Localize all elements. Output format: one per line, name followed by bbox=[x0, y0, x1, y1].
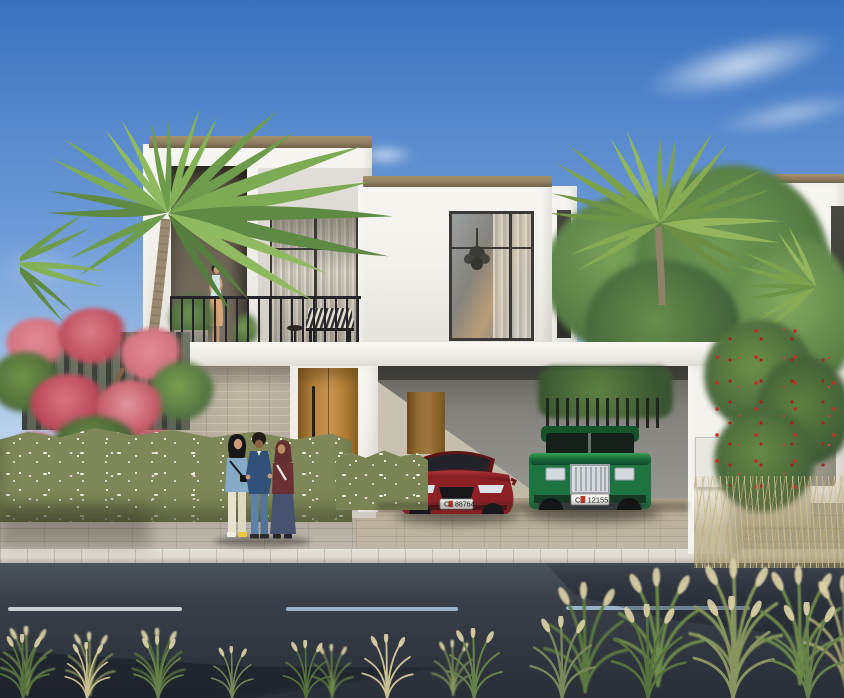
suv-headlight-right bbox=[615, 468, 634, 480]
palm-fronds-far-left bbox=[20, 214, 106, 323]
carport-cast-shadow bbox=[378, 503, 688, 515]
palm-trunk bbox=[658, 227, 662, 305]
suv-grille bbox=[571, 465, 609, 493]
red-flowers bbox=[708, 324, 838, 499]
chandelier-reflection bbox=[460, 228, 494, 280]
wildflower-patch-right bbox=[336, 448, 428, 510]
palm-tree-right bbox=[550, 115, 844, 340]
window-mullion bbox=[509, 214, 512, 338]
person-woman-hijab-maroon bbox=[270, 440, 296, 539]
curtain-reflection bbox=[493, 214, 531, 338]
person-man-blazer bbox=[246, 432, 273, 539]
palm-crown bbox=[550, 130, 781, 305]
suv-headlight-left bbox=[546, 468, 565, 480]
people-group bbox=[216, 430, 300, 542]
window-transom-bar bbox=[452, 247, 531, 249]
red-flower-bush bbox=[700, 316, 844, 568]
person-woman-hijab-blue bbox=[225, 434, 249, 537]
red-car-headlight-right bbox=[478, 485, 504, 493]
grass-front-row bbox=[0, 590, 844, 698]
villa-exterior-scene: C 88764 C 12155 bbox=[0, 0, 844, 698]
upper-window-right bbox=[449, 211, 534, 341]
